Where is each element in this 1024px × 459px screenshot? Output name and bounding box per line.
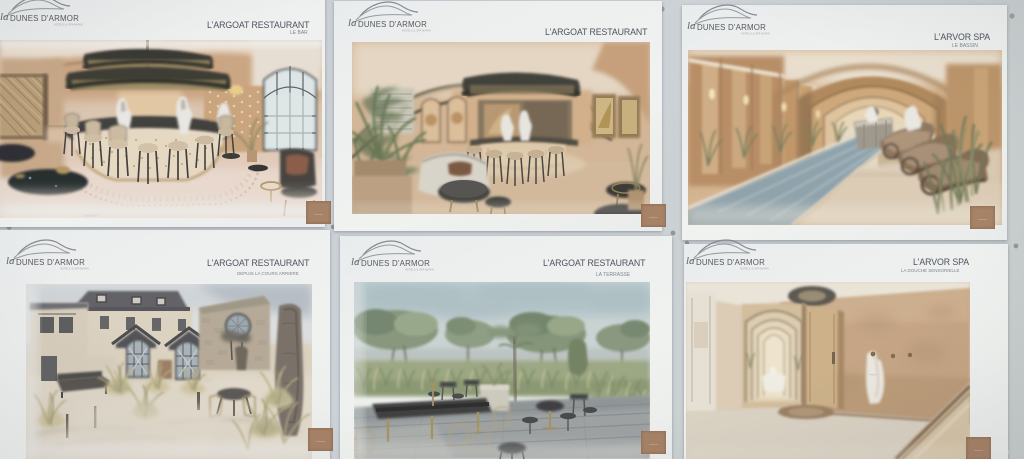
svg-text:la: la (686, 255, 695, 267)
svg-text:DUNES D'ARMOR: DUNES D'ARMOR (361, 259, 430, 268)
svg-text:DUNES D'ARMOR: DUNES D'ARMOR (16, 258, 85, 267)
svg-text:la: la (687, 20, 696, 32)
svg-text:DUNES D'ARMOR: DUNES D'ARMOR (358, 20, 427, 29)
svg-text:HOTELS & SPA MARIN: HOTELS & SPA MARIN (740, 268, 769, 271)
svg-text:la: la (0, 11, 9, 23)
svg-text:HOTELS & SPA MARIN: HOTELS & SPA MARIN (741, 33, 770, 36)
svg-text:DUNES D'ARMOR: DUNES D'ARMOR (696, 258, 765, 267)
svg-text:la: la (351, 256, 360, 268)
svg-text:la: la (6, 255, 15, 267)
svg-text:HOTELS & SPA MARIN: HOTELS & SPA MARIN (402, 30, 431, 33)
svg-text:la: la (348, 17, 357, 29)
svg-text:DUNES D'ARMOR: DUNES D'ARMOR (697, 23, 766, 32)
svg-text:HOTELS & SPA MARIN: HOTELS & SPA MARIN (60, 268, 89, 271)
svg-text:HOTELS & SPA MARIN: HOTELS & SPA MARIN (405, 269, 434, 272)
svg-text:HOTELS & SPA MARIN: HOTELS & SPA MARIN (54, 24, 83, 27)
svg-text:DUNES D'ARMOR: DUNES D'ARMOR (10, 14, 79, 23)
